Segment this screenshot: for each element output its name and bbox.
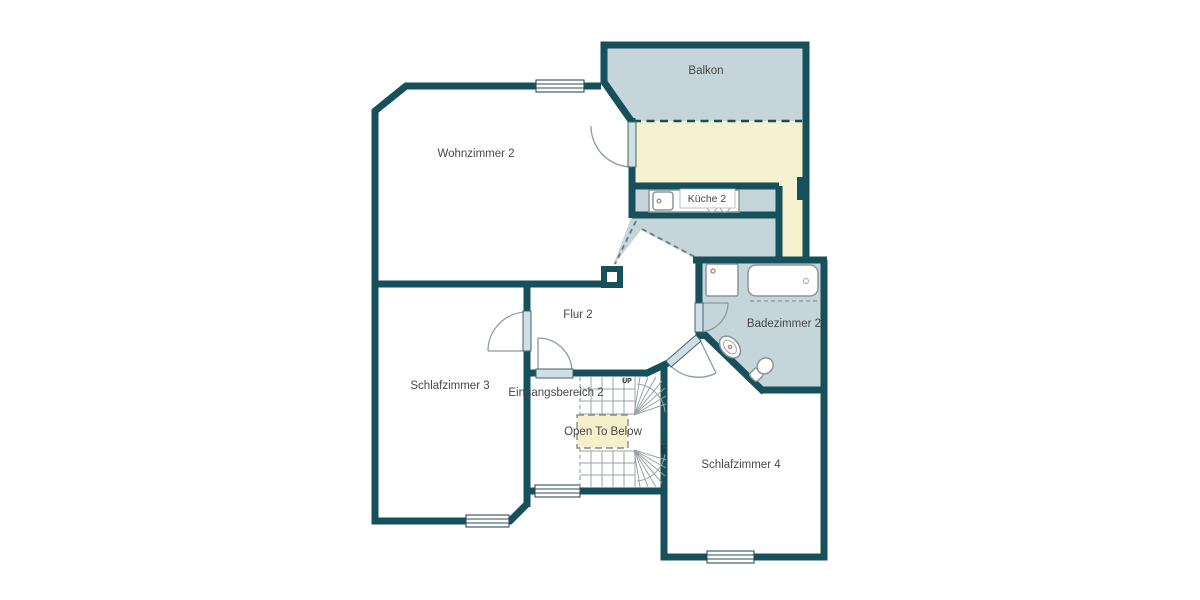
door-hall-to-stairs xyxy=(536,338,573,378)
room-label-open-to-below: Open To Below xyxy=(564,426,642,438)
room-label-schlafzimmer-4: Schlafzimmer 4 xyxy=(701,459,781,471)
window-bedroom4 xyxy=(707,551,754,563)
floor-plan-page: UP UP xyxy=(0,0,1200,600)
room-label-balkon: Balkon xyxy=(688,65,723,77)
window-bedroom3 xyxy=(466,515,509,527)
door-living-to-kitchen xyxy=(591,122,636,167)
stair-treads-bottom-flight xyxy=(580,451,635,487)
duct xyxy=(797,177,807,200)
room-label-kueche-2-group: Küche 2 xyxy=(680,189,735,208)
room-label-badezimmer-2: Badezimmer 2 xyxy=(747,318,821,330)
kitchen-sink-icon xyxy=(653,192,673,210)
window-living-room xyxy=(536,80,584,92)
door-hall-to-bedroom3 xyxy=(488,311,531,351)
room-label-schlafzimmer-3: Schlafzimmer 3 xyxy=(410,380,489,392)
bathtub-icon xyxy=(748,265,818,301)
stair-up-label-top: UP xyxy=(622,378,632,385)
room-label-eingangsbereich-2: Eingangsbereich 2 xyxy=(508,387,603,399)
stair-up-label-bottom: UP xyxy=(659,445,666,455)
balcony-floor xyxy=(604,45,806,121)
room-label-flur-2: Flur 2 xyxy=(563,309,592,321)
column-core xyxy=(607,272,617,282)
room-label-kueche-2: Küche 2 xyxy=(688,193,727,205)
shower-icon xyxy=(706,264,738,296)
window-entrance-area xyxy=(535,485,580,497)
floor-plan-canvas: UP UP xyxy=(0,0,1200,600)
room-label-wohnzimmer-2: Wohnzimmer 2 xyxy=(437,148,514,160)
